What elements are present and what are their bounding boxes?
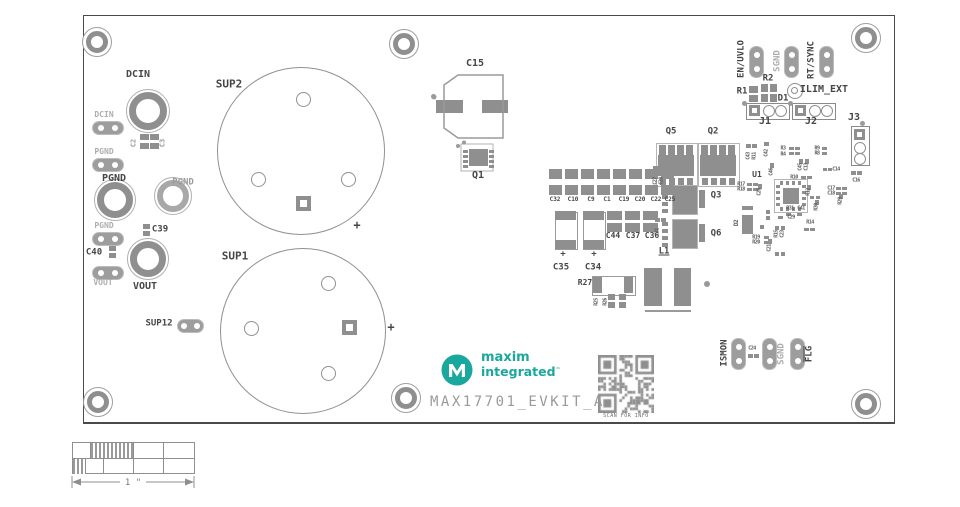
smd-pad	[613, 169, 626, 179]
smd-pad	[797, 213, 802, 216]
smd-pad	[823, 168, 827, 171]
smd-pad	[836, 187, 841, 190]
smd-pad	[822, 152, 827, 155]
smd-pad	[549, 169, 562, 179]
label-c15: C15	[466, 59, 484, 69]
label-r27: R27	[578, 279, 592, 287]
flg-testpoint	[790, 338, 805, 370]
label-vout-tp: VOUT	[93, 279, 112, 287]
label-q6: Q6	[711, 230, 722, 239]
smd-pad	[593, 277, 602, 293]
label-pgnd-tp1: PGND	[94, 148, 113, 156]
smd-pad	[764, 142, 769, 146]
qr-code	[598, 355, 654, 413]
label-en-uvlo: EN/UVLO	[738, 40, 747, 78]
label-c10: C10	[568, 197, 579, 203]
smd-pad	[645, 185, 658, 195]
label-r2: R2	[763, 75, 774, 84]
label-dcin-terminal: DCIN	[126, 70, 150, 80]
smd-pad	[549, 185, 562, 195]
smd-pad	[746, 144, 751, 148]
label-c21: C21	[768, 244, 773, 252]
j2-pin1-dot	[788, 101, 793, 106]
label-c18: C18	[827, 192, 835, 197]
label-flg: FLG	[806, 346, 815, 362]
pgnd-testpoint-2	[92, 232, 124, 246]
l1-inductor-line	[645, 310, 691, 312]
j3-pin1-dot	[860, 121, 865, 126]
smd-pad	[749, 86, 758, 93]
pgnd-testpoint-1	[92, 158, 124, 172]
label-j2: J2	[805, 117, 817, 127]
smd-pad	[807, 176, 812, 179]
smd-pad	[795, 152, 800, 155]
label-ismon: ISMON	[721, 339, 730, 366]
scale-label: 1 "	[125, 478, 141, 488]
ismon-testpoint	[731, 338, 746, 370]
label-r4: R4	[780, 153, 785, 158]
vout-terminal-pad	[127, 238, 169, 280]
smd-pad	[629, 169, 642, 179]
j1-pin1	[749, 105, 760, 116]
q6-mosfet	[662, 218, 706, 248]
label-r31: R31	[786, 207, 794, 212]
smd-pad	[661, 185, 674, 195]
trademark-symbol: ™	[556, 366, 561, 372]
smd-pad	[851, 171, 856, 175]
scale-bar-bottom-row	[73, 459, 194, 474]
label-c3: C3	[160, 139, 167, 147]
label-q1: Q1	[472, 171, 484, 181]
pcb-layout-image: maxim integrated™ MAX17701_EVKIT_A SCAN …	[0, 0, 960, 507]
smd-pad	[625, 211, 640, 220]
label-c1: C1	[603, 197, 610, 203]
label-c46: C46	[770, 168, 775, 176]
label-c16: C16	[852, 179, 860, 184]
smd-pad	[109, 246, 116, 251]
label-u1: U1	[752, 171, 762, 179]
sup2-pin	[341, 172, 356, 187]
label-c23: C23	[781, 230, 786, 238]
brand-line2: integrated™	[481, 365, 561, 378]
label-sup2: SUP2	[216, 79, 243, 90]
smd-pad	[789, 147, 794, 150]
label-c29: C29	[787, 216, 795, 221]
pgnd-terminal-pad	[94, 179, 136, 221]
q2-mosfet	[698, 143, 740, 187]
smd-pad	[565, 169, 578, 179]
label-dcin-tp: DCIN	[94, 111, 113, 119]
scale-bar	[72, 442, 195, 474]
smd-pad	[140, 134, 149, 140]
sup2-square-pin	[296, 196, 311, 211]
mounting-hole-bottom-middle	[391, 383, 421, 413]
label-rt-sync: RT/SYNC	[808, 41, 817, 79]
label-r1: R1	[737, 88, 748, 97]
dcin-testpoint	[92, 121, 124, 135]
sup1-pin	[244, 321, 259, 336]
label-c9: C9	[587, 197, 594, 203]
smd-pad	[555, 240, 576, 249]
smd-pad	[766, 210, 770, 214]
label-j1: J1	[759, 117, 771, 127]
label-c34: C34	[585, 264, 601, 273]
smd-pad	[565, 185, 578, 195]
label-c35: C35	[553, 264, 569, 273]
label-c44: C44	[606, 232, 620, 240]
smd-pad	[778, 216, 783, 219]
smd-pad	[607, 211, 622, 220]
label-c25: C25	[665, 197, 676, 203]
label-sup1-plus: +	[387, 321, 394, 333]
smd-pad	[644, 268, 662, 306]
label-l1: L1	[659, 248, 670, 257]
label-r14: R14	[806, 221, 814, 226]
label-r11: R11	[753, 152, 758, 160]
label-c39: C39	[152, 226, 168, 235]
label-c41: C41	[797, 207, 805, 212]
label-c2: C2	[131, 139, 138, 147]
label-c20: C20	[635, 197, 646, 203]
smd-pad	[770, 84, 777, 92]
label-c32: C32	[550, 197, 561, 203]
smd-pad	[770, 94, 777, 102]
sup12-testpoint	[177, 319, 204, 333]
label-r18: R18	[737, 188, 745, 193]
label-sup12: SUP12	[145, 320, 172, 329]
label-sgnd-top: SGND	[774, 50, 783, 72]
scale-dimension-line: 1 "	[66, 474, 200, 490]
label-c40: C40	[86, 249, 102, 258]
label-ilim-ext: ILIM_EXT	[800, 85, 848, 95]
smd-pad	[661, 218, 666, 222]
smd-pad	[608, 294, 615, 300]
j3-pin3	[854, 153, 866, 165]
smd-pad	[754, 354, 759, 358]
smd-pad	[747, 188, 752, 191]
smd-pad	[816, 196, 820, 199]
label-r30: R30	[815, 203, 820, 211]
label-q2: Q2	[708, 128, 719, 137]
smd-pad	[822, 147, 827, 150]
smd-pad	[801, 176, 806, 179]
mounting-hole-bottom-left	[83, 387, 113, 417]
label-r26: R26	[604, 298, 609, 306]
smd-pad	[608, 302, 615, 308]
label-d1: D1	[778, 95, 789, 104]
mounting-hole-top-middle	[389, 29, 419, 59]
smd-pad	[674, 268, 691, 306]
scale-bar-top-row	[73, 443, 194, 459]
smd-pad	[143, 231, 150, 236]
smd-pad	[749, 95, 758, 102]
smd-pad	[775, 252, 779, 256]
board-title: MAX17701_EVKIT_A	[430, 394, 605, 410]
smd-pad	[581, 169, 594, 179]
smd-pad	[760, 225, 764, 229]
label-r29: R29	[839, 197, 844, 205]
label-c22: C22	[651, 197, 662, 203]
brand-wordmark: maxim integrated™	[481, 351, 561, 378]
via-dot	[704, 281, 710, 287]
smd-pad	[857, 171, 862, 175]
label-q5: Q5	[666, 128, 677, 137]
label-sup1: SUP1	[222, 251, 249, 262]
sup2-pin	[251, 172, 266, 187]
label-r25: R25	[595, 298, 600, 306]
sup1-square-pin	[342, 320, 357, 335]
smd-pad	[761, 94, 768, 102]
sup1-pin	[321, 276, 336, 291]
mounting-hole-top-right	[851, 23, 881, 53]
j2-pin1	[795, 105, 806, 116]
label-vout-terminal: VOUT	[133, 282, 157, 292]
sup2-pin	[296, 92, 311, 107]
label-r8: R8	[814, 152, 819, 157]
smd-pad	[629, 185, 642, 195]
smd-pad	[789, 152, 794, 155]
smd-pad	[747, 183, 752, 186]
label-d2: D2	[734, 220, 740, 226]
label-c42: C42	[765, 149, 770, 157]
smd-pad	[804, 228, 809, 231]
j2-pin3	[821, 105, 833, 117]
smd-pad	[842, 187, 847, 190]
label-sup2-plus: +	[353, 219, 360, 231]
dcin-terminal-pad	[126, 89, 170, 133]
smd-pad	[653, 166, 658, 170]
label-pgnd-terminal-2: PGND	[172, 179, 194, 188]
mounting-hole-bottom-right	[851, 389, 881, 419]
sgnd-top-testpoint	[784, 46, 799, 78]
smd-pad	[581, 185, 594, 195]
smd-pad	[109, 253, 116, 258]
sgnd-bottom-testpoint	[762, 338, 777, 370]
smd-pad	[766, 216, 770, 220]
label-c24: C24	[748, 347, 756, 352]
label-pgnd-tp2: PGND	[94, 222, 113, 230]
smd-pad	[752, 144, 757, 148]
j1-pin1-dot	[742, 101, 747, 106]
label-j3: J3	[848, 113, 860, 123]
label-c35-plus: +	[560, 251, 565, 260]
smd-pad	[140, 143, 149, 149]
label-c19: C19	[619, 197, 630, 203]
label-c14: C14	[832, 168, 840, 173]
smd-pad	[761, 84, 768, 92]
smd-pad	[810, 196, 814, 199]
mounting-hole-top-left	[82, 27, 112, 57]
d2-diode	[742, 206, 753, 234]
label-c34-plus: +	[591, 251, 596, 260]
label-c37: C37	[626, 232, 640, 240]
j1-pin3	[775, 105, 787, 117]
smd-pad	[624, 277, 633, 293]
smd-pad	[655, 218, 660, 222]
label-q3: Q3	[711, 192, 722, 201]
smd-pad	[810, 228, 815, 231]
sup1-pin	[321, 366, 336, 381]
label-c13: C13	[805, 163, 810, 171]
label-r12: R12	[807, 188, 812, 196]
label-pgnd-terminal: PGND	[102, 174, 126, 184]
label-sgnd-bottom: SGND	[778, 343, 787, 365]
smd-pad	[619, 294, 626, 300]
smd-pad	[143, 224, 150, 229]
label-c31: C31	[656, 228, 661, 236]
smd-pad	[795, 147, 800, 150]
smd-pad	[781, 252, 785, 256]
smd-pad	[583, 211, 604, 220]
smd-pad	[613, 185, 626, 195]
brand-line1: maxim	[481, 351, 561, 365]
smd-pad	[748, 354, 753, 358]
label-r20: R20	[752, 241, 760, 246]
smd-pad	[555, 211, 576, 220]
maxim-logo-icon	[441, 354, 473, 386]
label-c26: C26	[758, 188, 763, 196]
smd-pad	[660, 166, 665, 170]
rt-sync-testpoint	[819, 46, 834, 78]
label-r10: R10	[790, 176, 798, 181]
smd-pad	[597, 185, 610, 195]
j3-pin1	[854, 129, 865, 140]
qr-caption: SCAN FOR INFO	[596, 413, 656, 419]
smd-pad	[583, 240, 604, 249]
smd-pad	[619, 302, 626, 308]
label-c28: C28	[660, 177, 665, 185]
smd-pad	[597, 169, 610, 179]
